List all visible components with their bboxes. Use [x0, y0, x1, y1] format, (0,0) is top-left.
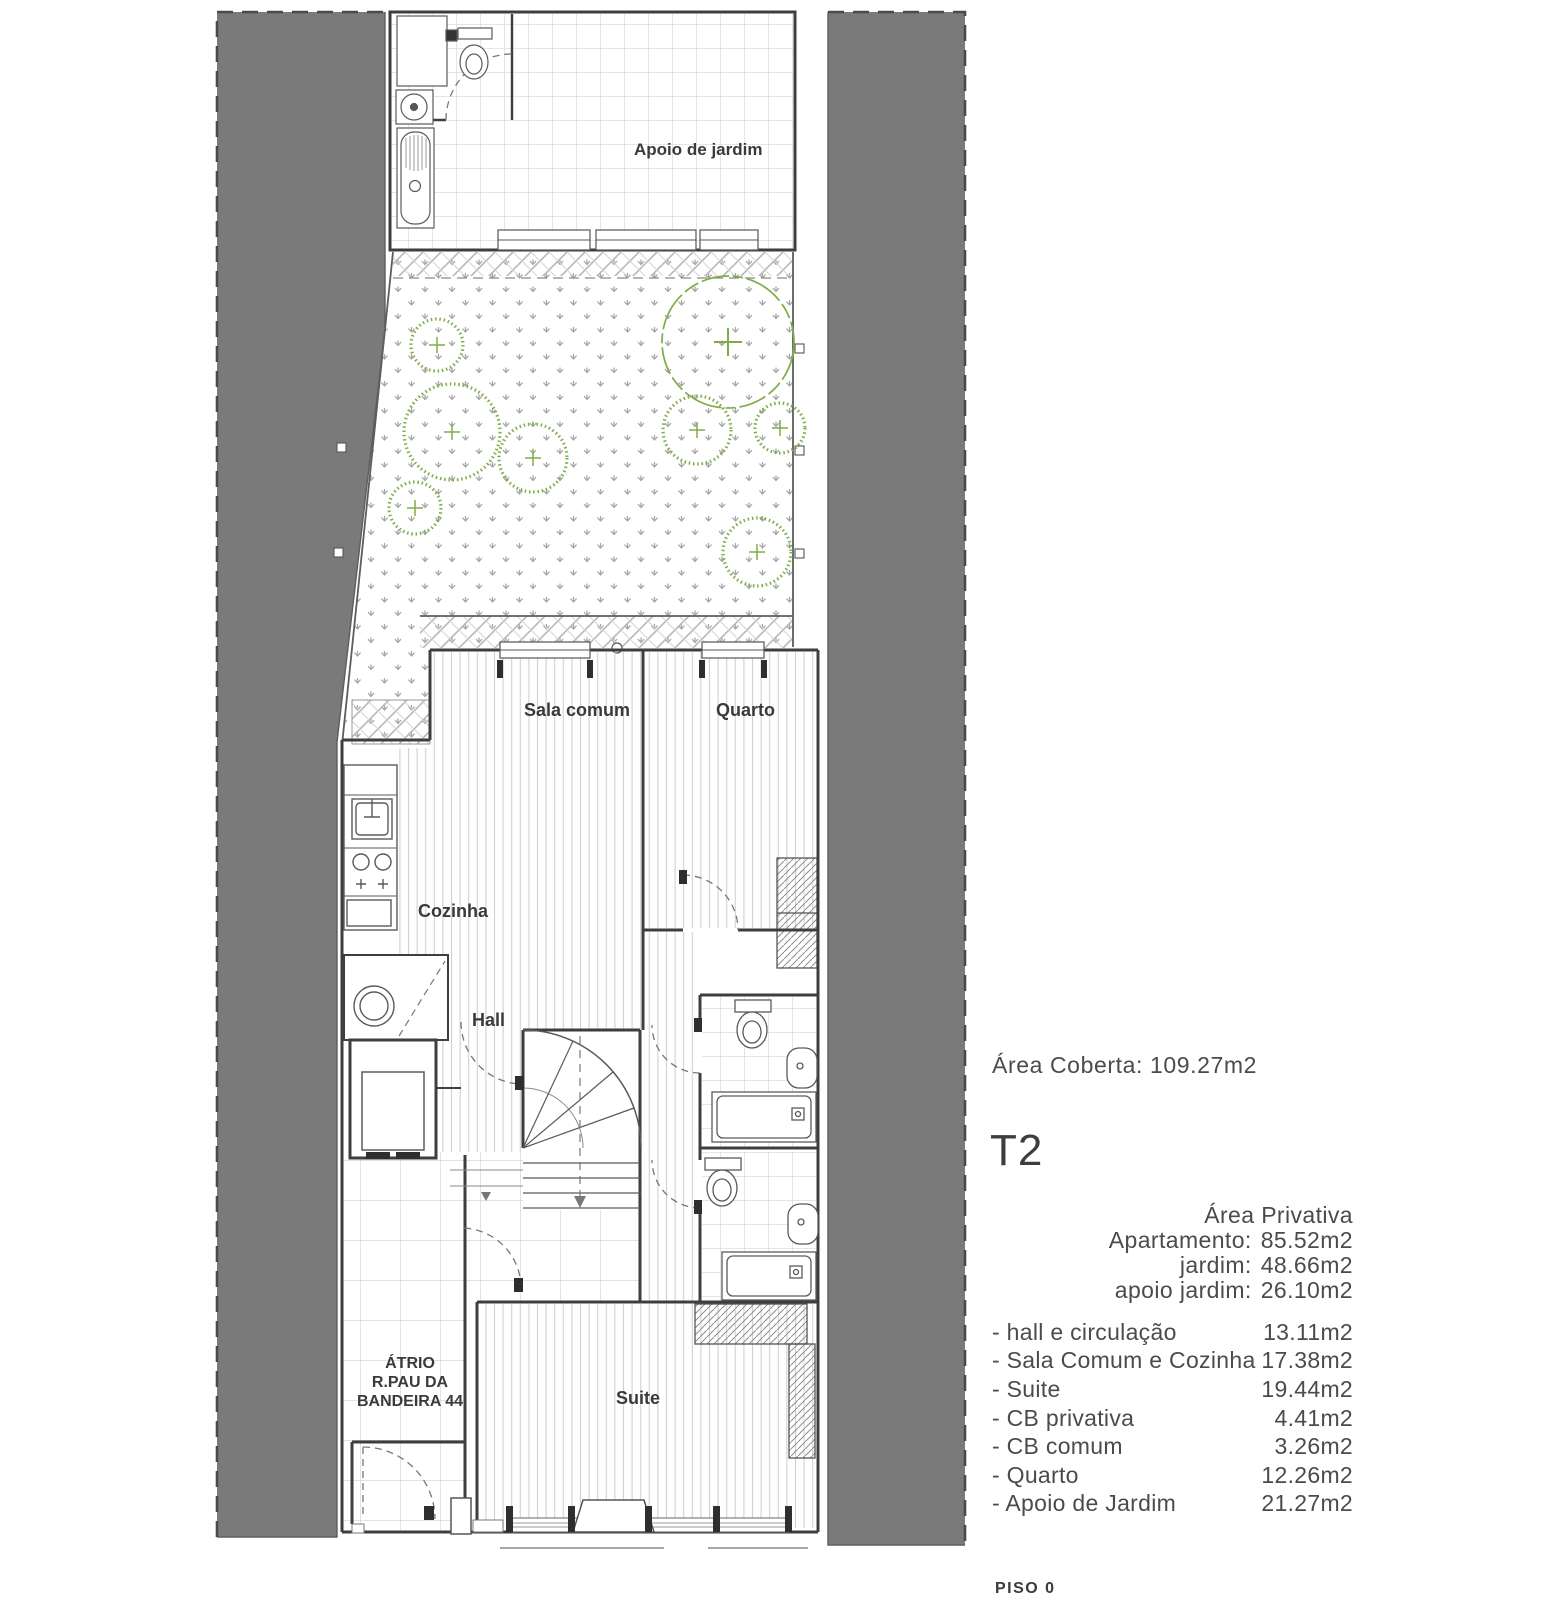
room-area-label: - Suite [992, 1376, 1061, 1403]
room-areas-list: - hall e circulação13.11m2 - Sala Comum … [992, 1318, 1353, 1518]
room-area-row: - hall e circulação13.11m2 [992, 1318, 1353, 1347]
room-area-value: 17.38m2 [1261, 1347, 1353, 1374]
private-area-line: apoio jardim:26.10m2 [992, 1278, 1353, 1303]
private-area-label: apoio jardim: [1115, 1277, 1252, 1303]
room-area-row: - CB privativa4.41m2 [992, 1404, 1353, 1433]
private-areas-block: Área Privativa Apartamento:85.52m2 jardi… [992, 1203, 1353, 1303]
room-area-row: - Quarto12.26m2 [992, 1461, 1353, 1490]
room-area-label: - Apoio de Jardim [992, 1490, 1176, 1517]
room-label-suite: Suite [616, 1388, 660, 1408]
floor-plan-sheet: Apoio de jardim [0, 0, 1556, 1609]
room-label-sala: Sala comum [524, 700, 630, 720]
private-area-value: 26.10m2 [1261, 1277, 1353, 1303]
atrio-label-3: BANDEIRA 44 [357, 1393, 463, 1410]
room-area-value: 19.44m2 [1261, 1376, 1353, 1403]
room-area-row: - CB comum3.26m2 [992, 1432, 1353, 1461]
room-area-value: 13.11m2 [1263, 1319, 1353, 1346]
room-area-label: - Sala Comum e Cozinha [992, 1347, 1256, 1374]
apoio-windows [498, 230, 758, 250]
room-area-label: - Quarto [992, 1462, 1079, 1489]
room-area-row: - Suite19.44m2 [992, 1375, 1353, 1404]
unit-type-label: T2 [990, 1126, 1043, 1176]
private-area-label: jardim: [1180, 1252, 1252, 1278]
room-area-value: 3.26m2 [1274, 1433, 1353, 1460]
room-label-cozinha: Cozinha [418, 901, 489, 921]
covered-area-note: Área Coberta: 109.27m2 [992, 1052, 1257, 1079]
private-area-line: jardim:48.66m2 [992, 1253, 1353, 1278]
room-area-row: - Apoio de Jardim21.27m2 [992, 1490, 1353, 1519]
atrio-label-1: ÁTRIO [385, 1353, 435, 1372]
room-label-hall: Hall [472, 1010, 505, 1030]
room-area-row: - Sala Comum e Cozinha17.38m2 [992, 1347, 1353, 1376]
private-area-value: 85.52m2 [1261, 1227, 1353, 1253]
room-area-value: 21.27m2 [1261, 1490, 1353, 1517]
room-area-label: - hall e circulação [992, 1319, 1177, 1346]
room-area-label: - CB privativa [992, 1405, 1134, 1432]
private-area-value: 48.66m2 [1261, 1252, 1353, 1278]
room-label-quarto: Quarto [716, 700, 775, 720]
room-area-value: 12.26m2 [1261, 1462, 1353, 1489]
private-area-line: Área Privativa Apartamento:85.52m2 [992, 1203, 1353, 1253]
right-neighbor-mass [828, 12, 965, 1545]
apoio-jardim-building: Apoio de jardim [390, 12, 795, 250]
room-area-value: 4.41m2 [1274, 1405, 1353, 1432]
room-area-label: - CB comum [992, 1433, 1123, 1460]
elevator [350, 1040, 436, 1159]
floor-title: PISO 0 [995, 1580, 1056, 1598]
room-label-apoio: Apoio de jardim [634, 140, 762, 159]
kitchen-fixtures [344, 765, 397, 930]
atrio-label-2: R.PAU DA [372, 1374, 449, 1391]
